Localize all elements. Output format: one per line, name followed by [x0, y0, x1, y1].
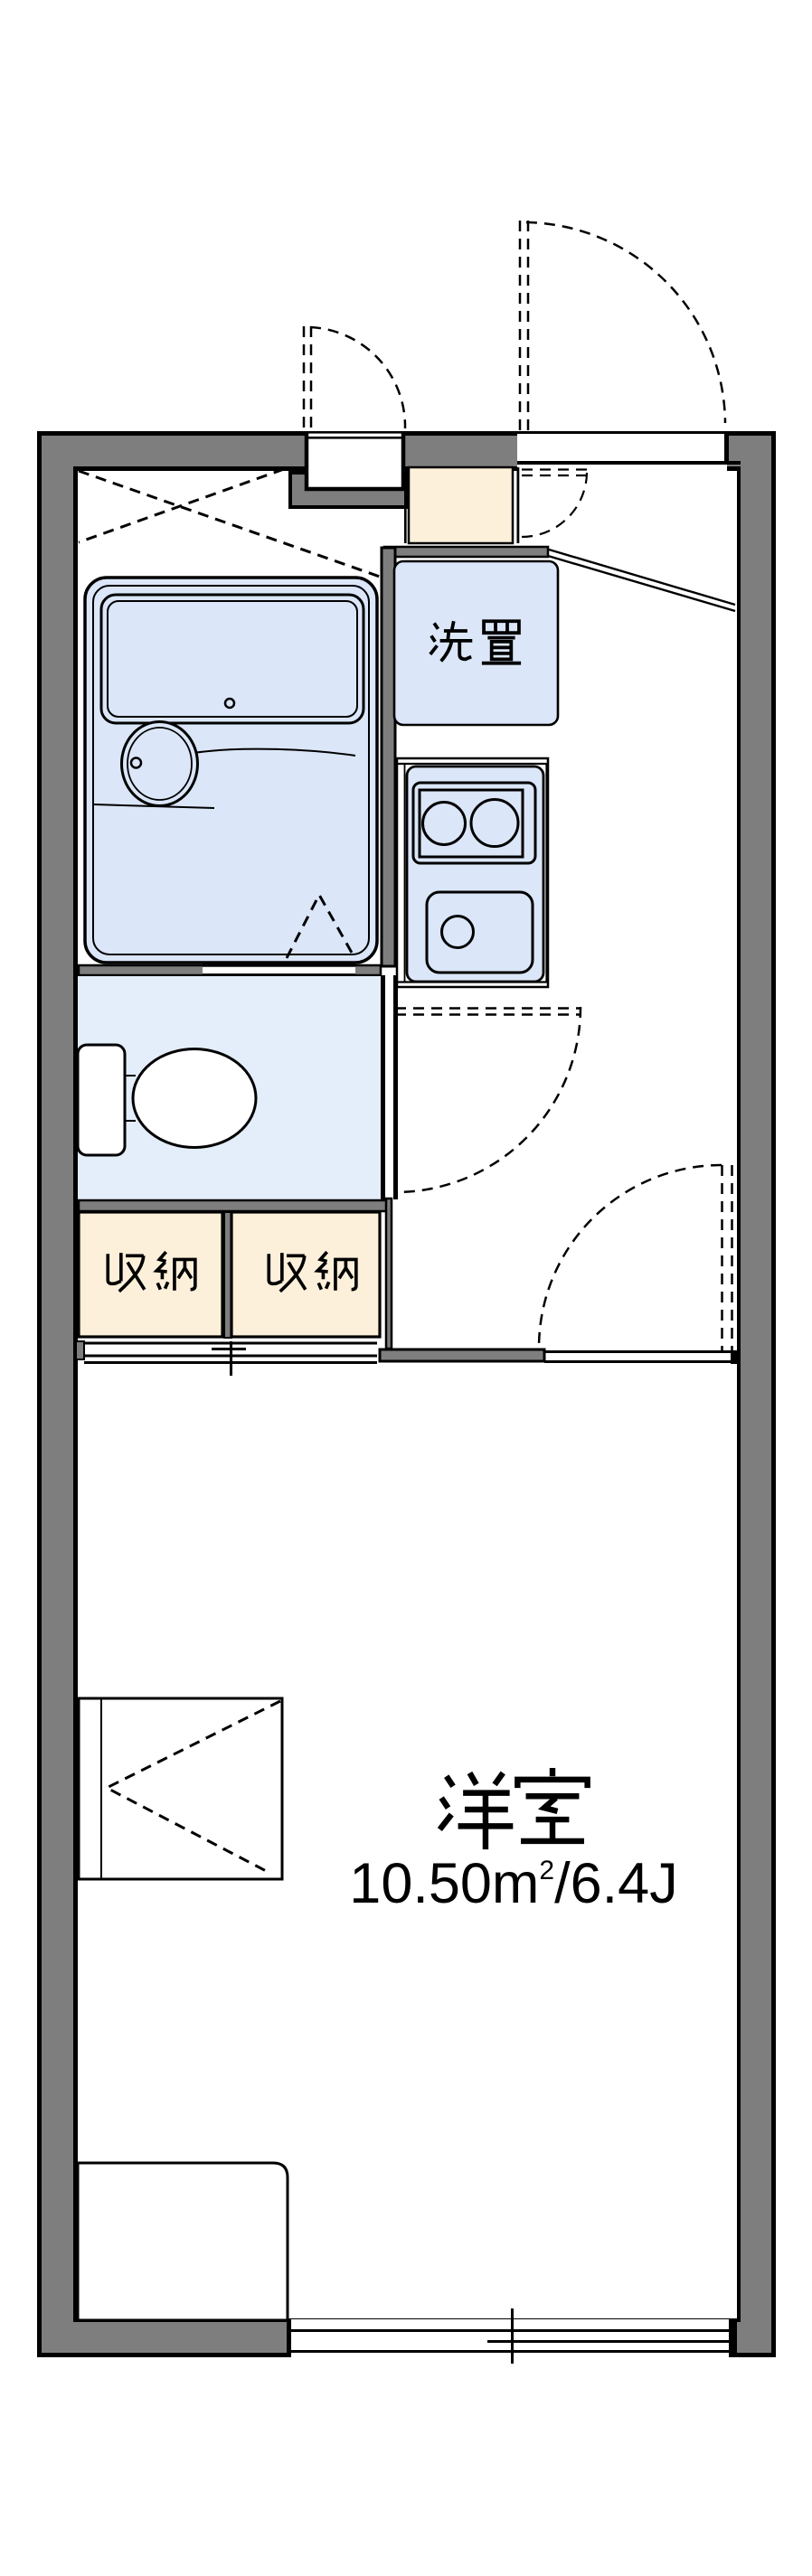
- svg-text:10.50m2/6.4J: 10.50m2/6.4J: [349, 1852, 677, 1915]
